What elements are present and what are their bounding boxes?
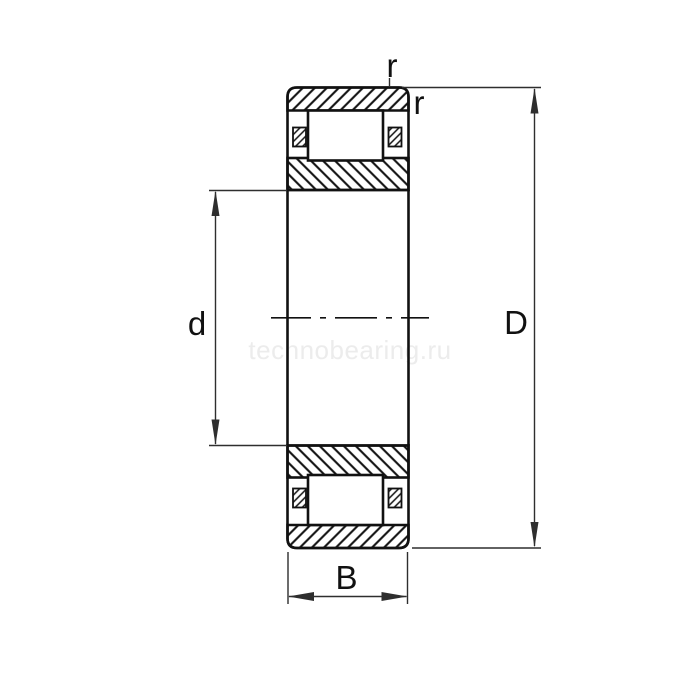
- d-arrow-up: [212, 191, 220, 217]
- B-arrow-right: [382, 592, 408, 601]
- B-label: B: [335, 559, 357, 596]
- dimension-B: B: [288, 552, 408, 604]
- B-arrow-left: [288, 592, 314, 601]
- bearing-drawing-page: technobearing.ru d: [0, 0, 700, 700]
- roller-bottom: [308, 475, 383, 525]
- r-label-top: r: [387, 47, 398, 84]
- cage-bar-top-right: [389, 128, 402, 147]
- bearing-drawing-canvas: technobearing.ru d: [0, 0, 700, 700]
- bearing-top-section: [288, 88, 409, 191]
- bearing-bottom-section: [288, 446, 409, 549]
- d-arrow-down: [212, 420, 220, 446]
- r-label-side: r: [414, 84, 425, 121]
- cage-bar-bottom-right: [389, 489, 402, 508]
- D-label: D: [504, 304, 528, 341]
- cage-bar-bottom-left: [293, 489, 306, 508]
- inner-ring-bottom: [288, 446, 409, 478]
- d-label: d: [188, 305, 206, 342]
- D-arrow-up: [531, 88, 539, 114]
- outer-ring-bottom: [288, 525, 409, 548]
- outer-ring-top: [288, 88, 409, 111]
- inner-ring-top: [288, 158, 409, 190]
- cage-bar-top-left: [293, 128, 306, 147]
- roller-top: [308, 111, 383, 161]
- watermark-text: technobearing.ru: [248, 335, 451, 365]
- D-arrow-down: [531, 522, 539, 548]
